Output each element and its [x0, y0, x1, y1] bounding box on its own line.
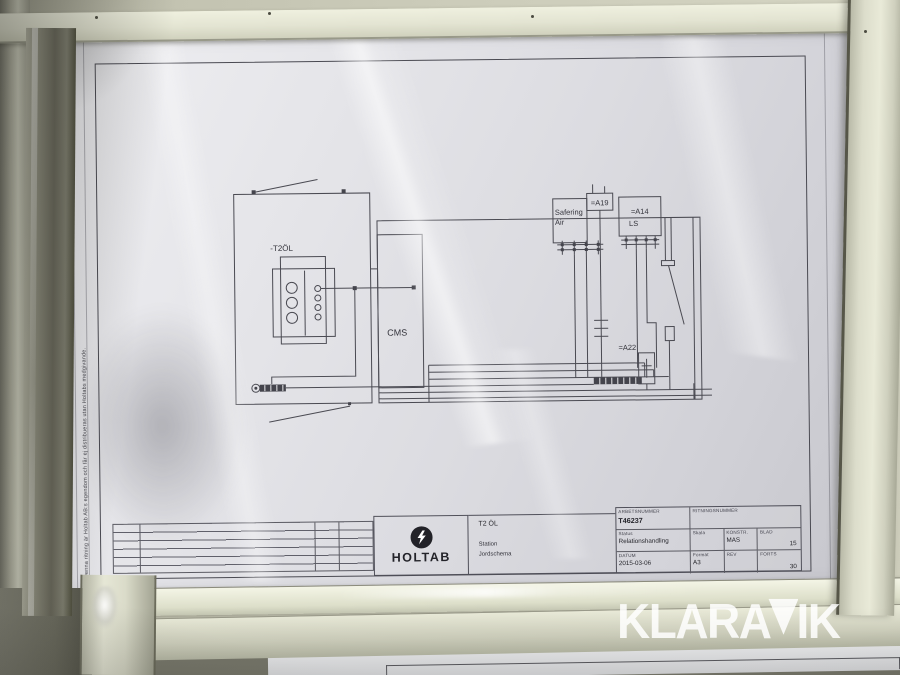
a14-label: =A14	[631, 207, 649, 216]
field-value: T46237	[618, 515, 687, 525]
drawing-title: T2 ÖL	[478, 519, 615, 528]
busbars	[557, 236, 659, 255]
company-name: HOLTAB	[392, 550, 451, 565]
earth-wiring-left	[251, 266, 594, 392]
revision-table-column-line	[314, 523, 316, 571]
field-skala: Skala	[691, 529, 725, 551]
klaravik-watermark: KLARA IK	[617, 597, 839, 646]
field-konstr: KONSTR. MAS	[724, 529, 758, 551]
photo-scene: -T2ÖL CMS	[0, 0, 900, 675]
field-value: 15	[790, 540, 797, 547]
drawing-title-block: T2 ÖL Station Jordschema	[468, 513, 616, 575]
field-label: Skala	[693, 530, 722, 535]
wall-speck	[95, 16, 98, 19]
a22-box	[638, 353, 654, 390]
field-arbetsnummer: ARBETSNUMMER T46237	[616, 507, 690, 530]
field-rev: REV	[725, 551, 759, 573]
bottom-wires	[379, 362, 712, 403]
screw-dot	[864, 30, 867, 33]
field-value: MAS	[726, 537, 755, 544]
watermark-text-left: KLARA	[617, 597, 770, 646]
left-frame-bar	[22, 28, 76, 616]
tape-clip-blob	[92, 586, 120, 634]
field-status: Status Relationshandling	[616, 529, 690, 552]
safering-label-1: Safering	[555, 208, 583, 217]
plastic-sleeve: -T2ÖL CMS	[53, 26, 853, 597]
wall-speck	[531, 15, 534, 18]
field-forts: FORTS 30	[758, 550, 801, 572]
field-value: 2015-03-06	[619, 559, 688, 567]
drawing-subtitle-1: Station	[479, 540, 616, 548]
left-enclosure	[234, 179, 373, 423]
wall-speck	[268, 12, 271, 15]
drawing-border	[95, 56, 811, 579]
cms-box	[377, 234, 424, 388]
revision-table-column-line	[139, 525, 141, 573]
company-logo-block: HOLTAB	[373, 515, 469, 576]
field-label: BLAD	[760, 529, 799, 534]
field-value: A3	[693, 559, 722, 566]
field-value: 30	[790, 563, 797, 570]
field-label: DATUM	[619, 552, 688, 558]
field-label: FORTS	[760, 551, 799, 556]
field-label: REV	[727, 552, 756, 557]
field-value: Relationshandling	[619, 537, 688, 545]
watermark-text-right: IK	[796, 597, 839, 646]
a19-label: =A19	[591, 198, 609, 207]
cms-label: CMS	[387, 328, 407, 338]
earth-bar	[594, 377, 642, 385]
field-value	[693, 514, 799, 515]
a14-box	[619, 197, 661, 236]
field-label: Format	[693, 552, 722, 557]
field-label: KONSTR.	[726, 530, 755, 535]
holtab-logo-icon	[410, 526, 432, 548]
a22-label: =A22	[618, 343, 636, 352]
field-datum: DATUM 2015-03-06	[617, 551, 691, 574]
drawing-info-grid: ARBETSNUMMER T46237 RITNINGSNUMMER Statu…	[615, 505, 802, 573]
safering-label-2: Air	[555, 218, 565, 227]
right-channel	[661, 217, 685, 389]
a14-sublabel: LS	[629, 219, 638, 228]
info-row-1: ARBETSNUMMER T46237 RITNINGSNUMMER	[616, 506, 800, 530]
field-ritningsnummer: RITNINGSNUMMER	[690, 506, 800, 529]
bottom-left-frame-post	[80, 575, 157, 675]
drawing-subtitle-2: Jordschema	[479, 550, 616, 558]
field-label: ARBETSNUMMER	[618, 508, 687, 514]
revision-table-column-line	[338, 522, 340, 570]
info-row-3: DATUM 2015-03-06 Format A3 REV FORTS 30	[617, 550, 801, 574]
field-label: RITNINGSNUMMER	[692, 507, 798, 513]
stylized-v-icon	[768, 599, 798, 635]
field-label: Status	[619, 530, 688, 536]
right-frame-bar	[836, 0, 900, 616]
transformer-symbol	[272, 256, 335, 344]
revision-table	[112, 521, 374, 574]
info-row-2: Status Relationshandling Skala KONSTR. M…	[616, 528, 800, 552]
field-format: Format A3	[691, 551, 725, 573]
field-blad: BLAD 15	[758, 528, 801, 550]
transformer-label: -T2ÖL	[270, 244, 293, 253]
